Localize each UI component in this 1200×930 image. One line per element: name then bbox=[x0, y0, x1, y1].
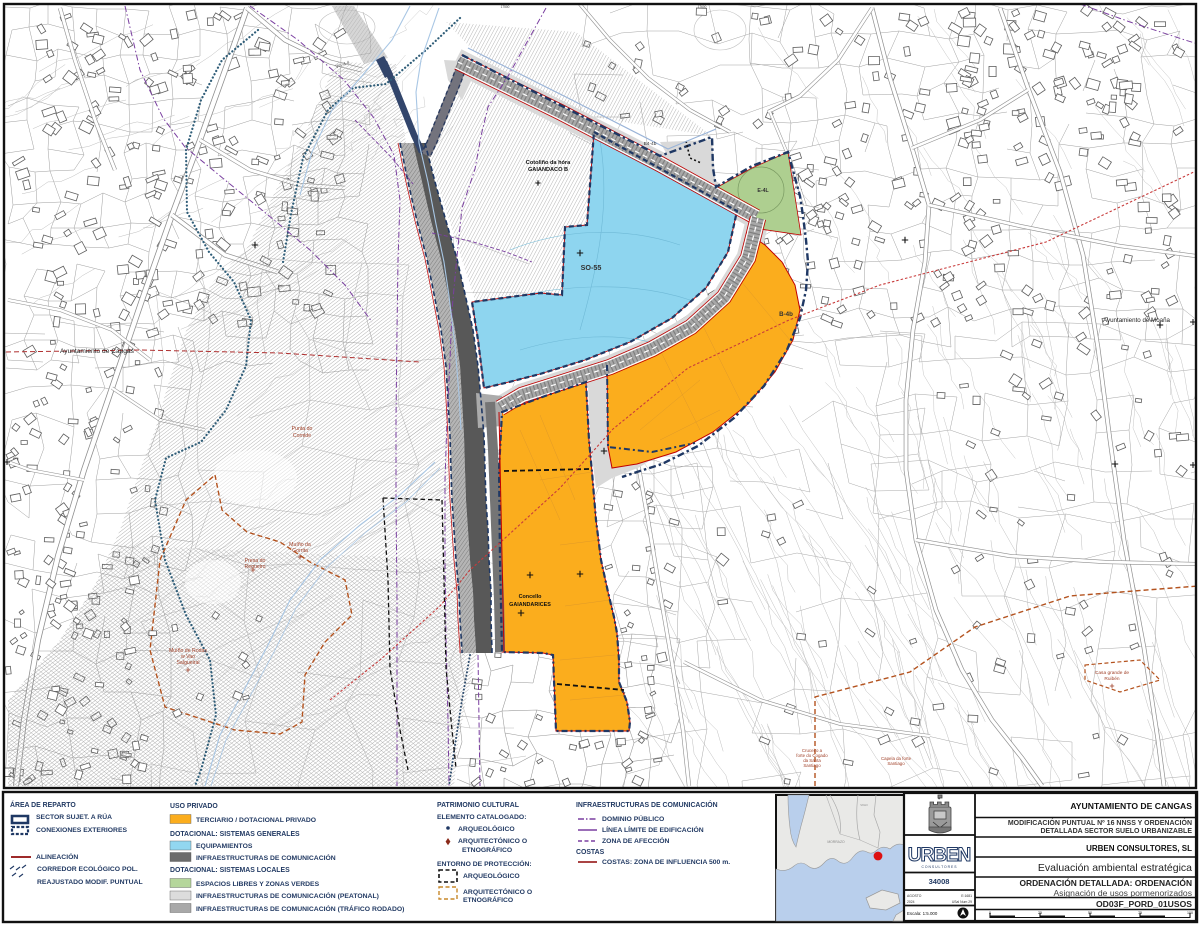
svg-text:ARQUITECTÓNICO O: ARQUITECTÓNICO O bbox=[463, 887, 532, 896]
svg-text:AGOSTO: AGOSTO bbox=[907, 894, 922, 898]
svg-text:PATRIMONIO CULTURAL: PATRIMONIO CULTURAL bbox=[437, 802, 519, 809]
svg-text:DETALLADA SECTOR SUELO URBANIZ: DETALLADA SECTOR SUELO URBANIZABLE bbox=[1040, 828, 1192, 835]
svg-text:2024: 2024 bbox=[907, 900, 915, 904]
svg-text:50: 50 bbox=[1088, 911, 1092, 915]
svg-text:B-4b: B-4b bbox=[779, 311, 793, 318]
svg-text:0: 0 bbox=[989, 911, 991, 915]
svg-text:Evaluación ambiental estratégi: Evaluación ambiental estratégica bbox=[1038, 862, 1192, 874]
svg-text:Santiago: Santiago bbox=[803, 763, 821, 768]
svg-text:DOTACIONAL: SISTEMAS LOCALES: DOTACIONAL: SISTEMAS LOCALES bbox=[170, 867, 290, 874]
svg-text:CONEXIONES EXTERIORES: CONEXIONES EXTERIORES bbox=[36, 827, 127, 834]
svg-text:URBEN CONSULTORES, SL: URBEN CONSULTORES, SL bbox=[1086, 844, 1192, 853]
svg-text:17500: 17500 bbox=[501, 5, 510, 9]
svg-text:ARQUEOLÓGICO: ARQUEOLÓGICO bbox=[458, 824, 515, 833]
svg-text:ENTORNO DE PROTECCIÓN:: ENTORNO DE PROTECCIÓN: bbox=[437, 859, 532, 868]
svg-text:Punta do: Punta do bbox=[292, 426, 313, 432]
svg-text:Regueiro: Regueiro bbox=[244, 564, 265, 570]
svg-text:ETNOGRÁFICO: ETNOGRÁFICO bbox=[462, 845, 512, 854]
svg-text:Salgueiral: Salgueiral bbox=[176, 660, 199, 666]
svg-text:COSTAS: COSTAS bbox=[576, 849, 605, 856]
svg-text:URBEN: URBEN bbox=[908, 845, 971, 866]
svg-text:Escala: 1:5.000: Escala: 1:5.000 bbox=[907, 911, 938, 916]
svg-text:Casa grande de: Casa grande de bbox=[1095, 670, 1129, 676]
svg-text:LÍNEA LÍMITE DE EDIFICACIÓN: LÍNEA LÍMITE DE EDIFICACIÓN bbox=[602, 825, 704, 834]
svg-text:E-4L: E-4L bbox=[757, 188, 769, 194]
svg-text:Ayuntamiento de Cangas: Ayuntamiento de Cangas bbox=[60, 348, 135, 355]
svg-text:TERCIARIO / DOTACIONAL PRIVADO: TERCIARIO / DOTACIONAL PRIVADO bbox=[196, 817, 316, 824]
svg-text:ARQUEOLÓGICO: ARQUEOLÓGICO bbox=[463, 871, 520, 880]
svg-text:COSTAS: ZONA DE INFLUENCIA 500: COSTAS: ZONA DE INFLUENCIA 500 m. bbox=[602, 859, 730, 866]
svg-text:ELEMENTO CATALOGADO:: ELEMENTO CATALOGADO: bbox=[437, 814, 527, 821]
svg-text:ÁREA DE REPARTO: ÁREA DE REPARTO bbox=[10, 800, 76, 809]
svg-text:VIGO: VIGO bbox=[860, 803, 868, 807]
svg-text:34008: 34008 bbox=[929, 877, 950, 886]
svg-text:ORDENACIÓN DETALLADA: ORDENACI: ORDENACIÓN DETALLADA: ORDENACIÓN bbox=[1020, 877, 1192, 888]
svg-text:INFRAESTRUCTURAS DE COMUNICACI: INFRAESTRUCTURAS DE COMUNICACIÓN (TRÁFIC… bbox=[196, 904, 404, 913]
svg-text:USO PRIVADO: USO PRIVADO bbox=[170, 803, 218, 810]
svg-text:ETNOGRÁFICO: ETNOGRÁFICO bbox=[463, 895, 513, 904]
svg-text:USal Num 29: USal Num 29 bbox=[952, 900, 972, 904]
svg-text:ESPACIOS LIBRES Y ZONAS VERDES: ESPACIOS LIBRES Y ZONAS VERDES bbox=[196, 881, 320, 888]
svg-text:EQUIPAMIENTOS: EQUIPAMIENTOS bbox=[196, 843, 253, 850]
svg-text:GAIANDARICES: GAIANDARICES bbox=[509, 602, 551, 608]
svg-text:17600: 17600 bbox=[698, 5, 707, 9]
svg-text:MODIFICACIÓN PUNTUAL Nº 16 NNS: MODIFICACIÓN PUNTUAL Nº 16 NNSS Y ORDENA… bbox=[1008, 818, 1192, 827]
svg-text:SECTOR SUJET. A RÚA: SECTOR SUJET. A RÚA bbox=[36, 812, 112, 821]
svg-text:B4-4b: B4-4b bbox=[644, 141, 657, 147]
svg-text:INFRAESTRUCTURAS DE COMUNICACI: INFRAESTRUCTURAS DE COMUNICACIÓN (PEATON… bbox=[196, 891, 379, 900]
svg-text:Gorrita: Gorrita bbox=[292, 548, 308, 554]
svg-text:Concello: Concello bbox=[519, 594, 542, 600]
svg-text:25: 25 bbox=[1038, 911, 1042, 915]
svg-text:E:1681: E:1681 bbox=[961, 894, 972, 898]
svg-text:DOTACIONAL: SISTEMAS GENERALES: DOTACIONAL: SISTEMAS GENERALES bbox=[170, 831, 300, 838]
svg-text:CORREDOR ECOLÓGICO POL.: CORREDOR ECOLÓGICO POL. bbox=[37, 864, 138, 873]
svg-text:INFRAESTRUCTURAS DE COMUNICACI: INFRAESTRUCTURAS DE COMUNICACIÓN bbox=[196, 853, 336, 862]
svg-text:ZONA DE AFECCIÓN: ZONA DE AFECCIÓN bbox=[602, 836, 670, 845]
svg-text:Santiago: Santiago bbox=[887, 761, 905, 766]
svg-text:SO-55: SO-55 bbox=[581, 263, 602, 272]
svg-text:Cornide: Cornide bbox=[293, 433, 311, 439]
svg-text:75: 75 bbox=[1138, 911, 1142, 915]
svg-text:DOMINIO PÚBLICO: DOMINIO PÚBLICO bbox=[602, 814, 664, 823]
svg-text:GAIANDACO B: GAIANDACO B bbox=[528, 167, 568, 173]
svg-text:C O N S U L T O R E S: C O N S U L T O R E S bbox=[922, 865, 958, 869]
svg-text:AYUNTAMIENTO DE CANGAS: AYUNTAMIENTO DE CANGAS bbox=[1070, 801, 1192, 811]
svg-text:Ruibén: Ruibén bbox=[1104, 676, 1120, 682]
svg-text:Asignación de usos pormenoriza: Asignación de usos pormenorizados bbox=[1053, 888, 1192, 898]
svg-text:Cotoliño da hóra: Cotoliño da hóra bbox=[526, 160, 571, 166]
svg-text:REAJUSTADO MODIF. PUNTUAL: REAJUSTADO MODIF. PUNTUAL bbox=[37, 879, 143, 886]
svg-text:100: 100 bbox=[1187, 911, 1193, 915]
svg-text:ARQUITECTÓNICO O: ARQUITECTÓNICO O bbox=[458, 836, 527, 845]
svg-text:MORRAZO: MORRAZO bbox=[827, 840, 845, 844]
svg-text:INFRAESTRUCTURAS DE COMUNICACI: INFRAESTRUCTURAS DE COMUNICACIÓN bbox=[576, 800, 718, 809]
svg-text:OD03F_PORD_01USOS: OD03F_PORD_01USOS bbox=[1096, 899, 1192, 909]
svg-text:ALINEACIÓN: ALINEACIÓN bbox=[36, 852, 78, 861]
